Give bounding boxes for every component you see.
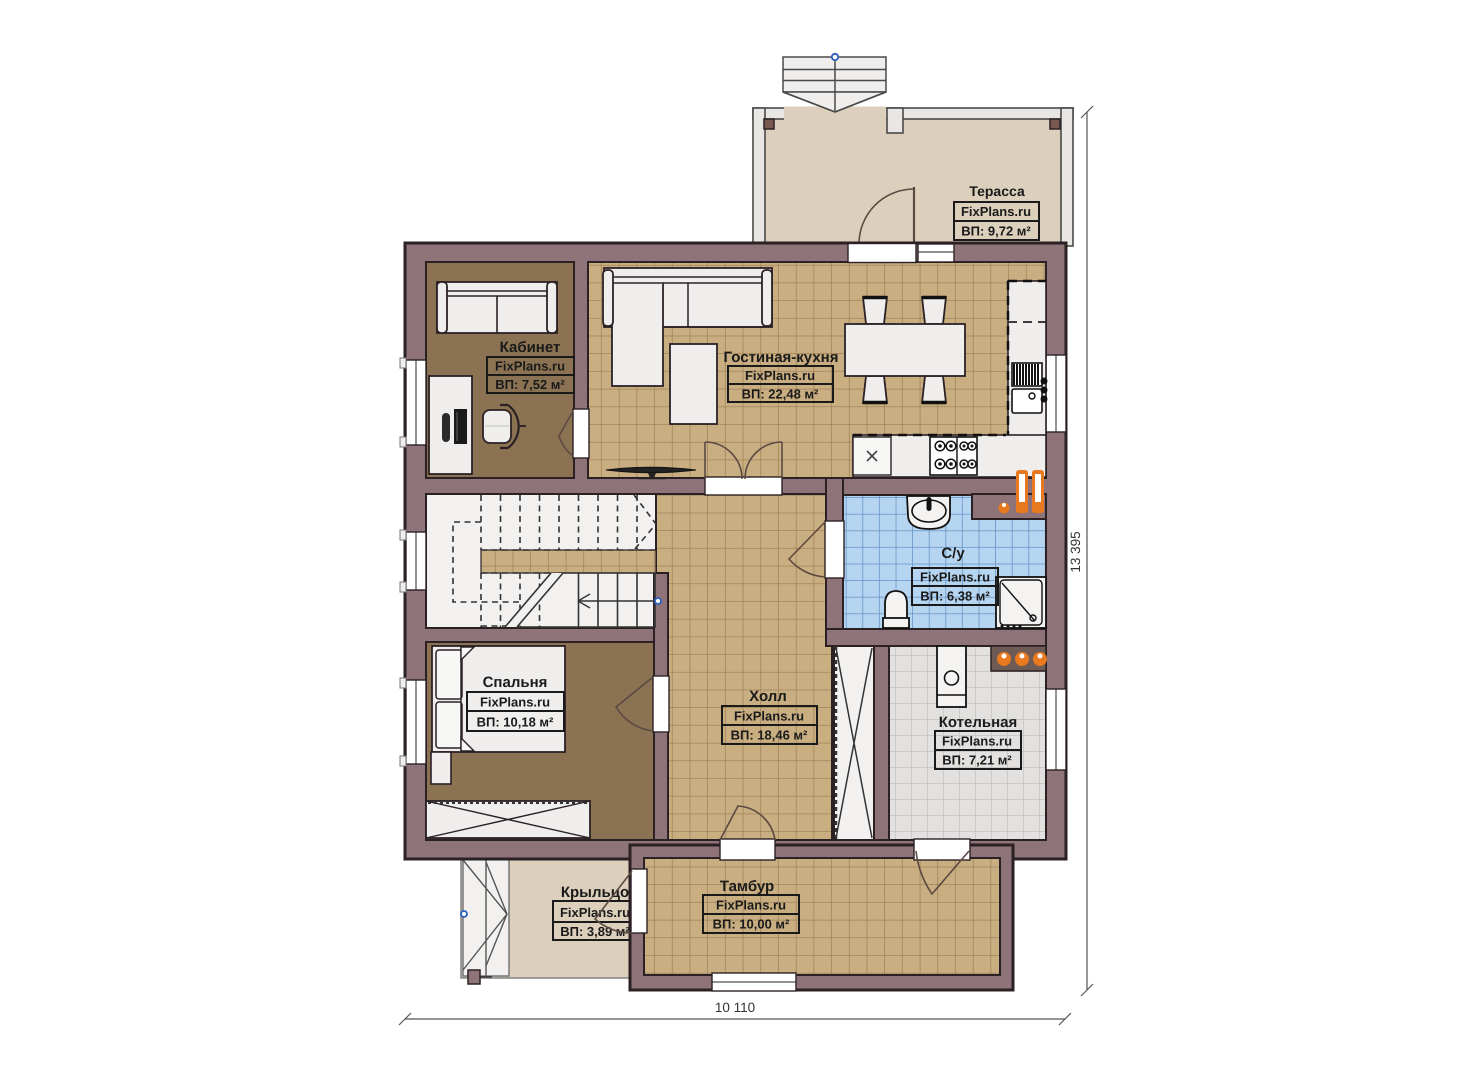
svg-text:FixPlans.ru: FixPlans.ru [942, 734, 1012, 749]
svg-text:FixPlans.ru: FixPlans.ru [734, 709, 804, 724]
svg-text:ВП: 10,00 м²: ВП: 10,00 м² [713, 917, 790, 932]
svg-text:FixPlans.ru: FixPlans.ru [745, 368, 815, 383]
svg-text:ВП: 7,21 м²: ВП: 7,21 м² [942, 753, 1012, 768]
svg-text:ВП: 6,38 м²: ВП: 6,38 м² [920, 589, 990, 604]
svg-text:Холл: Холл [749, 688, 787, 705]
svg-text:13 395: 13 395 [1068, 531, 1083, 572]
svg-text:Терасса: Терасса [969, 183, 1025, 199]
svg-text:Гостиная-кухня: Гостиная-кухня [724, 349, 839, 366]
svg-text:ВП: 9,72 м²: ВП: 9,72 м² [961, 224, 1031, 239]
svg-text:10 110: 10 110 [715, 1000, 755, 1015]
svg-text:ВП: 7,52 м²: ВП: 7,52 м² [495, 377, 565, 392]
svg-text:ВП: 22,48 м²: ВП: 22,48 м² [742, 387, 819, 402]
svg-text:Кабинет: Кабинет [500, 339, 561, 356]
svg-text:FixPlans.ru: FixPlans.ru [716, 898, 786, 913]
svg-text:Тамбур: Тамбур [720, 878, 774, 895]
svg-text:ВП: 10,18 м²: ВП: 10,18 м² [477, 715, 554, 730]
svg-text:Спальня: Спальня [483, 674, 548, 691]
svg-text:FixPlans.ru: FixPlans.ru [495, 359, 565, 374]
svg-text:С/у: С/у [941, 545, 965, 562]
svg-text:FixPlans.ru: FixPlans.ru [920, 570, 990, 585]
svg-text:FixPlans.ru: FixPlans.ru [961, 204, 1031, 219]
svg-text:FixPlans.ru: FixPlans.ru [480, 695, 550, 710]
svg-text:Крыльцо: Крыльцо [561, 884, 629, 901]
svg-text:ВП: 18,46 м²: ВП: 18,46 м² [731, 728, 808, 743]
svg-text:Котельная: Котельная [939, 714, 1018, 731]
